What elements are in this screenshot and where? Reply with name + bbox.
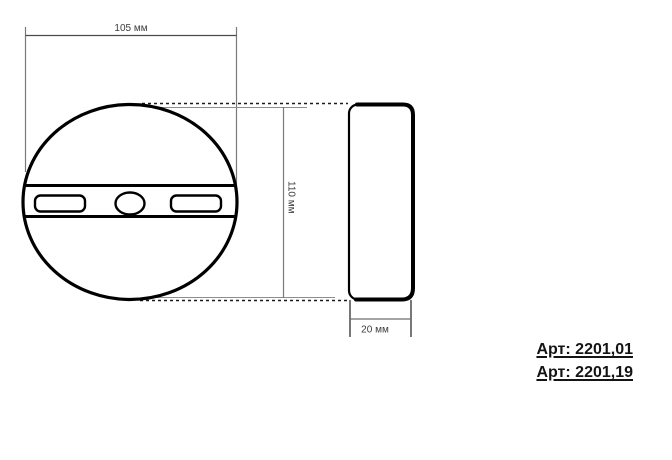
dimension-height: 110 мм bbox=[284, 107, 297, 298]
dimension-depth: 20 мм bbox=[350, 300, 411, 337]
article-numbers: Арт: 2201,01 Арт: 2201,19 bbox=[536, 338, 633, 384]
page: 105 мм 110 мм bbox=[0, 0, 672, 460]
technical-drawing: 105 мм 110 мм bbox=[0, 0, 672, 460]
article-number-2: Арт: 2201,19 bbox=[536, 361, 633, 384]
center-hole bbox=[116, 193, 145, 215]
side-view-outline bbox=[349, 105, 413, 300]
dimension-label-depth: 20 мм bbox=[361, 325, 389, 336]
dimension-label-width: 105 мм bbox=[114, 23, 147, 34]
front-view bbox=[18, 105, 242, 300]
article-number-1: Арт: 2201,01 bbox=[536, 338, 633, 361]
side-view bbox=[349, 105, 413, 300]
slot-left bbox=[35, 196, 85, 212]
slot-right bbox=[171, 196, 221, 212]
dimension-label-height: 110 мм bbox=[286, 181, 297, 214]
